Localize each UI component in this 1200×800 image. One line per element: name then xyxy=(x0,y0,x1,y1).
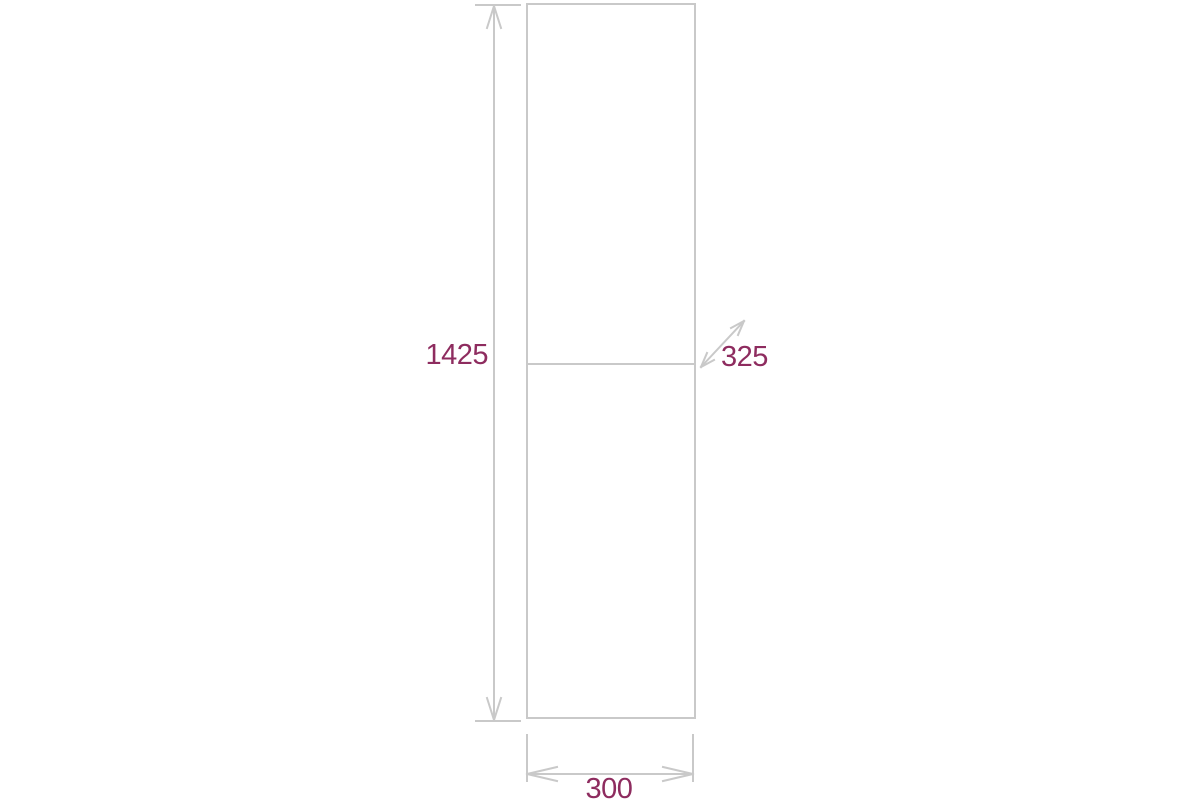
depth-dimension-label: 325 xyxy=(721,342,768,374)
drawing-lines xyxy=(476,4,744,781)
width-dimension-label: 300 xyxy=(549,774,669,800)
dimension-diagram: 1425 325 300 xyxy=(0,0,1200,800)
drawing-canvas xyxy=(0,0,1200,800)
cabinet-outline xyxy=(527,4,695,718)
height-dimension-label: 1425 xyxy=(378,340,488,372)
